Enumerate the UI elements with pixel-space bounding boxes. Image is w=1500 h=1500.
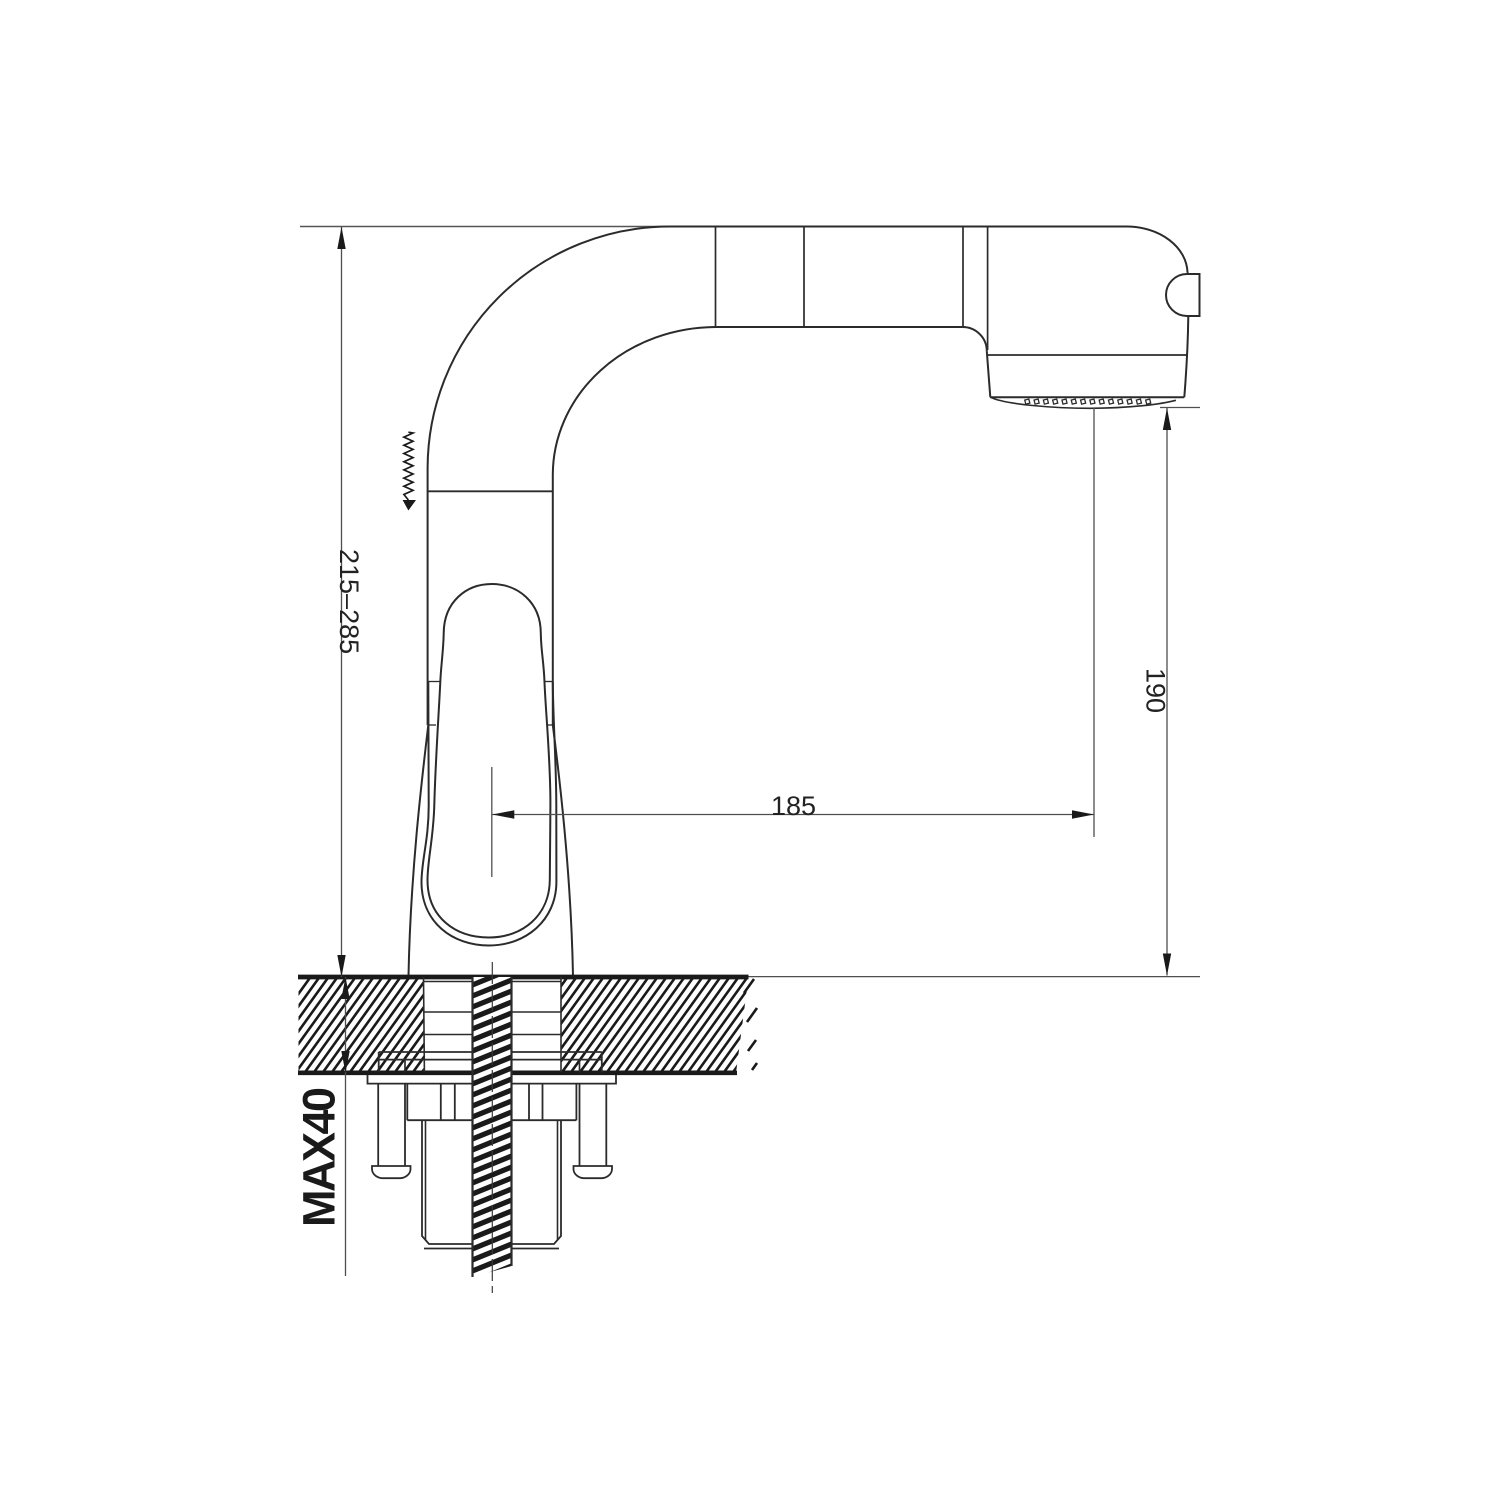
svg-text:215–285: 215–285	[334, 549, 364, 654]
svg-text:MAX40: MAX40	[294, 1088, 345, 1227]
svg-text:190: 190	[1141, 668, 1171, 713]
svg-text:185: 185	[771, 791, 816, 821]
